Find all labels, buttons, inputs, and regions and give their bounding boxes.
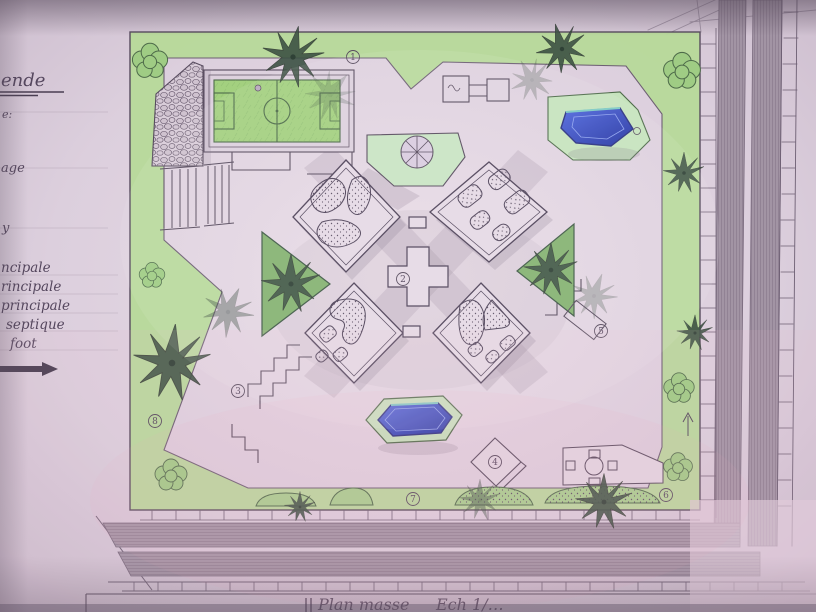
legend-item: age	[1, 161, 25, 176]
pool-south	[366, 396, 462, 455]
svg-text:7: 7	[410, 495, 416, 505]
plan-title: Plan masse	[317, 595, 409, 612]
plaza-tab-south	[403, 326, 420, 337]
legend-item: e:	[2, 108, 12, 121]
plan-drawing: ende e: age y ncipale rincipale principa…	[0, 0, 816, 612]
plan-scale: Ech 1/…	[435, 595, 504, 612]
south-road-lane-1	[103, 523, 740, 547]
legend-item: y	[1, 221, 10, 236]
plaza-tab-north	[409, 217, 426, 228]
east-road-lane-1	[714, 0, 746, 543]
south-road-lane-2	[118, 552, 760, 576]
east-road-lane-2	[748, 0, 782, 546]
svg-text:8: 8	[152, 417, 158, 427]
svg-text:1: 1	[350, 53, 356, 63]
legend-item: foot	[9, 336, 37, 352]
building-right-block	[487, 79, 509, 101]
site-plan-photo: ende e: age y ncipale rincipale principa…	[0, 0, 816, 612]
legend-heading: ende	[1, 70, 45, 91]
svg-text:4: 4	[492, 458, 498, 468]
building-left-block	[443, 76, 469, 102]
svg-text:2: 2	[400, 275, 406, 285]
legend-item: ncipale	[1, 260, 51, 276]
svg-text:5: 5	[598, 327, 604, 337]
svg-text:6: 6	[663, 491, 669, 501]
legend-item: rincipale	[1, 279, 61, 295]
legend-item: principale	[1, 298, 70, 314]
ball-sketch	[255, 85, 261, 91]
legend-item: septique	[6, 317, 65, 333]
stone-shadow	[203, 70, 211, 166]
pool-shadow	[568, 147, 640, 161]
svg-text:3: 3	[235, 387, 241, 397]
